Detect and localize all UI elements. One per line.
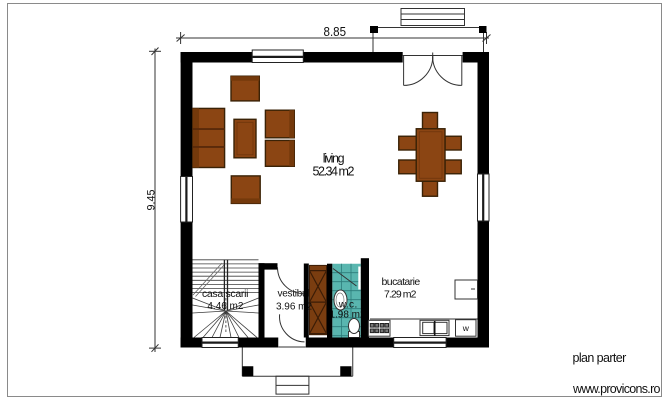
svg-text:w: w [462,323,470,333]
svg-text:8.85: 8.85 [324,25,347,39]
svg-text:1.98 m2: 1.98 m2 [330,310,366,321]
svg-text:7.29 m2: 7.29 m2 [384,289,417,301]
svg-text:bucatarie: bucatarie [382,276,421,288]
svg-text:casa scarii: casa scarii [202,288,249,300]
svg-text:4.46 m2: 4.46 m2 [207,301,243,312]
svg-text:52.34 m2: 52.34 m2 [313,164,355,178]
svg-text:9.45: 9.45 [145,190,157,211]
svg-text:living: living [323,151,345,165]
svg-text:plan parter: plan parter [573,351,627,365]
svg-text:www.provicons.ro: www.provicons.ro [572,382,661,396]
